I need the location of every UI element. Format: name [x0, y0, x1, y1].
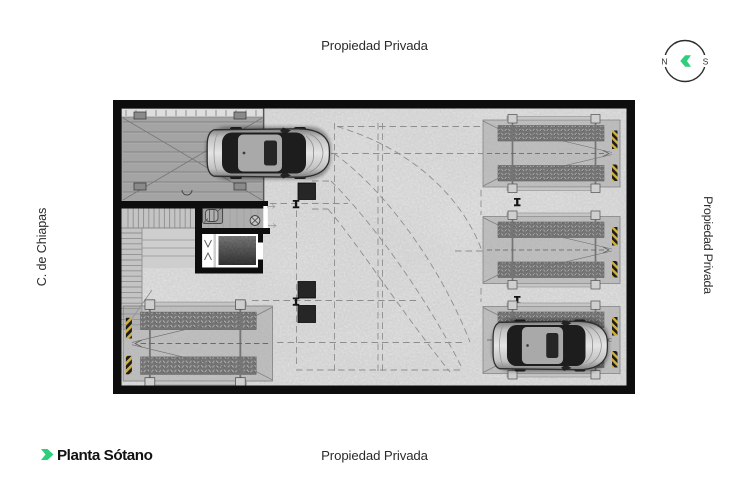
svg-text:Propiedad Privada: Propiedad Privada [701, 196, 715, 294]
svg-text:C. de Chiapas: C. de Chiapas [35, 208, 49, 287]
svg-text:Propiedad Privada: Propiedad Privada [321, 38, 429, 53]
svg-text:Propiedad Privada: Propiedad Privada [321, 448, 429, 463]
svg-text:N: N [661, 57, 667, 67]
svg-text:S: S [703, 57, 709, 67]
svg-text:Planta Sótano: Planta Sótano [57, 447, 153, 464]
